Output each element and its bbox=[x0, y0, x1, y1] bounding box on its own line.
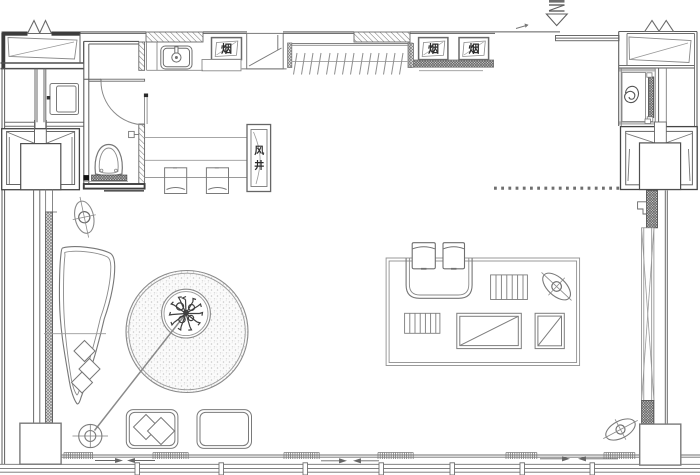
svg-text:烟: 烟 bbox=[469, 42, 480, 56]
svg-text:烟: 烟 bbox=[221, 42, 232, 56]
svg-text:井: 井 bbox=[254, 159, 264, 172]
svg-text:风: 风 bbox=[254, 145, 264, 157]
svg-text:烟: 烟 bbox=[428, 42, 439, 56]
